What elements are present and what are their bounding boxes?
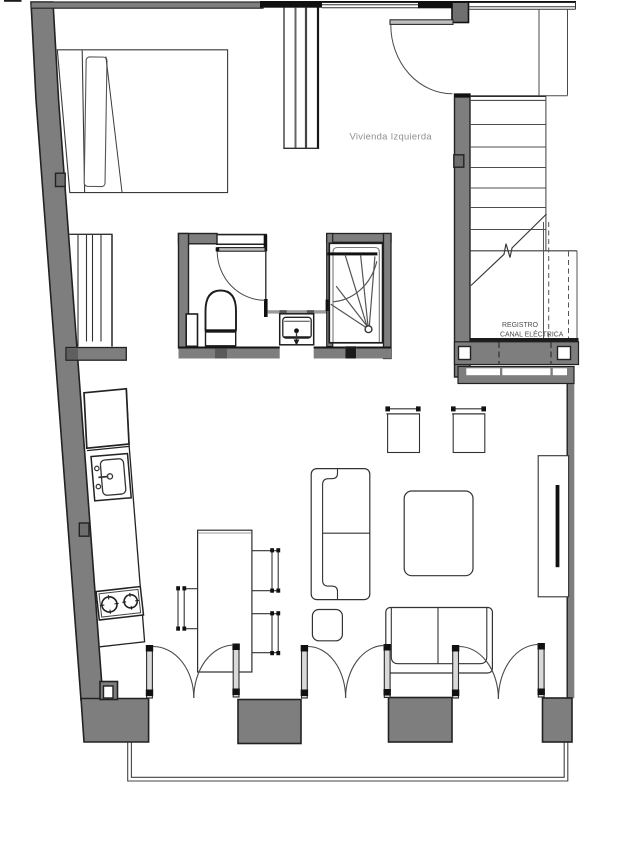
svg-text:REGISTRO: REGISTRO — [502, 322, 539, 329]
svg-text:CANAL ELÉCTRICA: CANAL ELÉCTRICA — [500, 330, 564, 339]
svg-text:Vivienda Izquierda: Vivienda Izquierda — [350, 131, 433, 142]
